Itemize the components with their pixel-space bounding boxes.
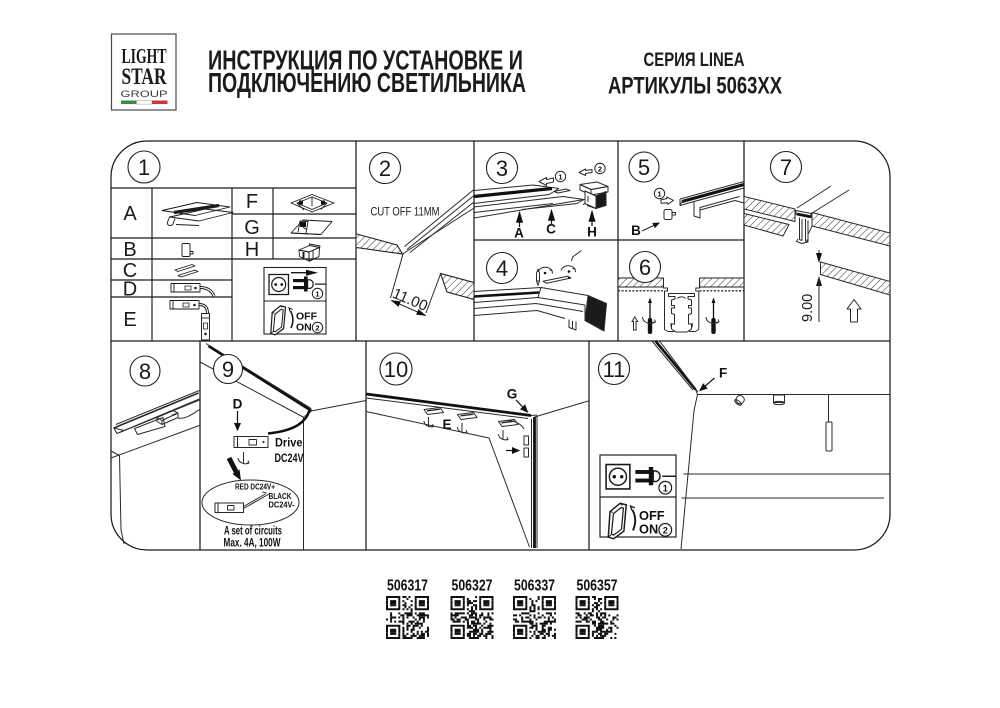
svg-text:АРТИКУЛЫ 5063ХХ: АРТИКУЛЫ 5063ХХ [608, 73, 782, 100]
svg-text:STAR: STAR [122, 64, 167, 89]
svg-text:5: 5 [638, 155, 650, 180]
svg-text:B: B [123, 239, 136, 261]
svg-text:506317: 506317 [387, 578, 428, 595]
svg-text:1: 1 [558, 172, 562, 181]
svg-text:H: H [245, 239, 259, 261]
svg-text:3: 3 [496, 156, 508, 181]
svg-text:H: H [587, 225, 597, 240]
svg-text:F: F [719, 366, 727, 381]
svg-text:506337: 506337 [514, 578, 555, 595]
svg-text:10: 10 [384, 357, 408, 382]
svg-text:F: F [246, 191, 258, 213]
svg-text:GROUP: GROUP [121, 89, 168, 100]
svg-text:DC24V-: DC24V- [269, 501, 295, 510]
svg-text:C: C [546, 222, 556, 237]
svg-text:СЕРИЯ LINEA: СЕРИЯ LINEA [644, 50, 745, 71]
svg-text:G: G [507, 387, 518, 402]
svg-text:E: E [123, 309, 136, 331]
svg-text:506357: 506357 [577, 578, 618, 595]
svg-text:7: 7 [780, 155, 792, 180]
svg-text:1: 1 [657, 189, 661, 198]
svg-text:A: A [514, 226, 524, 241]
svg-text:9.00: 9.00 [800, 294, 816, 322]
svg-text:506327: 506327 [452, 578, 493, 595]
svg-text:G: G [244, 217, 260, 239]
svg-text:RED DC24V+: RED DC24V+ [235, 483, 275, 492]
svg-text:Drive: Drive [275, 436, 303, 450]
svg-text:A: A [123, 203, 137, 225]
svg-text:2: 2 [598, 164, 602, 173]
svg-text:Max. 4A, 100W: Max. 4A, 100W [224, 538, 281, 550]
svg-text:ПОДКЛЮЧЕНИЮ СВЕТИЛЬНИКА: ПОДКЛЮЧЕНИЮ СВЕТИЛЬНИКА [208, 67, 526, 98]
svg-text:A set of circuits: A set of circuits [224, 526, 282, 538]
svg-text:9: 9 [222, 357, 234, 382]
svg-text:B: B [631, 223, 641, 238]
svg-text:D: D [123, 279, 137, 301]
svg-text:4: 4 [496, 256, 508, 281]
svg-text:CUT OFF 11MM: CUT OFF 11MM [371, 207, 440, 219]
svg-text:11: 11 [603, 357, 626, 382]
svg-text:8: 8 [139, 359, 151, 384]
svg-text:2: 2 [379, 156, 391, 181]
svg-text:DC24V: DC24V [275, 451, 304, 465]
svg-text:6: 6 [639, 255, 651, 280]
svg-text:E: E [442, 417, 451, 432]
svg-text:1: 1 [138, 155, 150, 180]
svg-text:D: D [233, 397, 243, 412]
